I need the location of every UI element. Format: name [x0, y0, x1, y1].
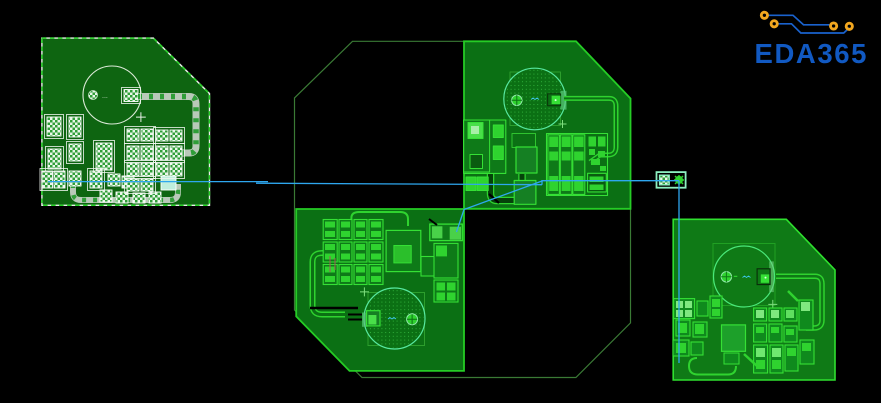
svg-text:EDA365: EDA365 — [755, 38, 869, 69]
svg-text:...: ... — [102, 93, 108, 100]
